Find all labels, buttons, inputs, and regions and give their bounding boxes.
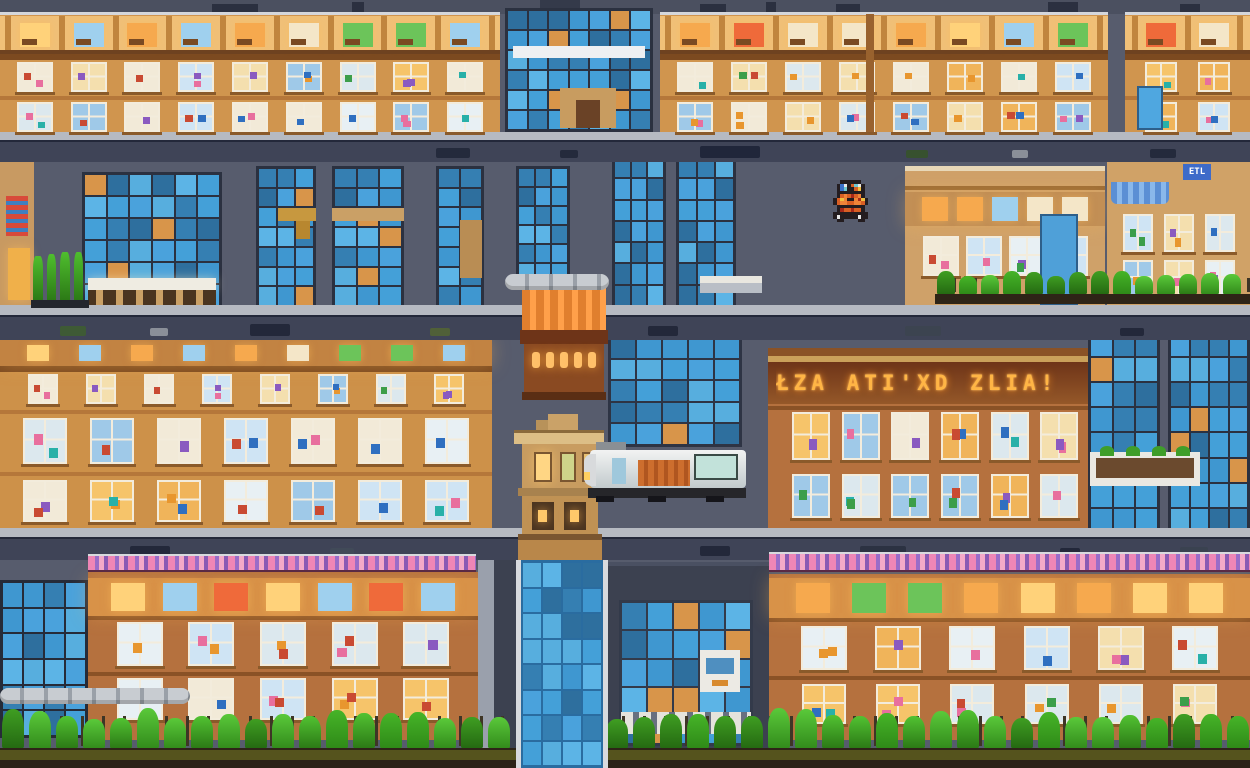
balcony-planters [1152, 446, 1166, 456]
window [1024, 626, 1070, 670]
glass-pane [259, 287, 276, 305]
glass-pane [648, 286, 663, 305]
glass-pane [358, 268, 379, 286]
glass-pane [1091, 408, 1112, 431]
glass-pane [278, 169, 295, 187]
window-sill [837, 132, 877, 135]
hedge-bush [849, 716, 871, 748]
glass-pane [543, 614, 561, 638]
balcony-pier [989, 16, 995, 54]
glass-pane [85, 241, 106, 261]
window-interior [180, 104, 212, 130]
glass-pane [278, 287, 295, 305]
street-object [60, 326, 86, 336]
window-interior [159, 482, 199, 520]
glass-pane [543, 716, 561, 740]
glass-pane [563, 716, 581, 740]
street-object [436, 148, 470, 158]
balcony-pier [5, 16, 11, 54]
attic-window [1021, 583, 1055, 613]
service-beam [332, 208, 404, 221]
window [90, 418, 134, 464]
glass-pane [461, 189, 481, 207]
roof-edge [660, 12, 1108, 15]
glass-pane [726, 603, 750, 629]
window [1055, 62, 1091, 92]
glass-pane [715, 403, 739, 423]
window [1123, 214, 1153, 252]
window-interior [1003, 104, 1035, 130]
glass-pane [632, 201, 647, 220]
cornice [0, 54, 500, 60]
attic-window [235, 23, 265, 47]
glass-pane [543, 665, 561, 689]
window-sill [675, 132, 715, 135]
glass-pane [66, 609, 85, 633]
hedge-bush [1173, 714, 1195, 748]
window-sill [176, 132, 216, 135]
window [677, 62, 713, 92]
roof-edge [1125, 12, 1250, 15]
window-accent [238, 116, 245, 123]
window-sill [1053, 92, 1093, 95]
window-accent [249, 438, 258, 448]
edge-post [603, 560, 608, 768]
glass-pane [461, 169, 481, 187]
window [875, 626, 921, 670]
window-sill [432, 404, 466, 407]
window-accent [1035, 704, 1044, 713]
roof-edge [0, 12, 500, 15]
glass-pane [358, 169, 379, 187]
window-interior [73, 64, 105, 90]
lobby-door [576, 100, 600, 128]
balcony-pier [1237, 16, 1243, 54]
glass-pane [45, 583, 64, 607]
glass-pane [1171, 383, 1189, 406]
attic-window [964, 583, 998, 613]
street-object [1012, 150, 1028, 158]
window-accent [349, 115, 356, 122]
window-accent [911, 119, 918, 126]
lamp [538, 510, 547, 522]
balcony-pier [773, 16, 779, 54]
attic-window [1146, 23, 1176, 47]
glass-pane [439, 248, 459, 266]
furniture [1148, 39, 1163, 45]
window-sill [284, 92, 324, 95]
window-sill [939, 518, 981, 521]
window-sill [947, 670, 997, 673]
glass-grid [1091, 333, 1157, 557]
window-interior [342, 64, 374, 90]
window-accent [143, 117, 150, 124]
glass-pane [85, 175, 106, 195]
glass-pane [3, 660, 22, 684]
window [842, 412, 880, 460]
glass-pane [1091, 484, 1112, 507]
blue-glass-door [1137, 86, 1163, 130]
window-accent [462, 115, 469, 122]
glass-pane [130, 241, 151, 261]
window-interior [895, 64, 927, 90]
window-interior [262, 376, 288, 402]
window-accent [1170, 229, 1176, 237]
glass-pane [108, 197, 129, 217]
window [224, 418, 268, 464]
glass-pane [700, 688, 724, 714]
glass-pane [648, 243, 663, 262]
glass-pane [679, 201, 696, 220]
window [144, 374, 174, 404]
window-accent [44, 392, 50, 399]
window-accent [279, 649, 288, 659]
window-interior [395, 104, 427, 130]
window-interior [1200, 104, 1228, 130]
attic-window [450, 23, 480, 47]
glass-pane [3, 634, 22, 658]
window-accent [178, 504, 187, 513]
glass-pane [1230, 484, 1248, 507]
sidewalk-edge [0, 528, 1250, 537]
window [291, 418, 335, 464]
window-interior [234, 104, 266, 130]
glass-pane [1191, 358, 1209, 381]
window-accent [422, 702, 431, 711]
balcony-planters [1096, 458, 1194, 478]
window-interior [334, 624, 376, 664]
hedge-bush [380, 713, 402, 748]
wheel [706, 496, 724, 502]
window-accent [298, 439, 307, 449]
window [966, 236, 1002, 276]
window-sill [840, 460, 882, 463]
glass-pane [1230, 459, 1248, 482]
glass-pane [523, 665, 541, 689]
glass-pane [698, 201, 715, 220]
window-accent [1180, 697, 1189, 706]
window-accent [34, 434, 43, 444]
window [17, 102, 53, 132]
glass-pane [278, 189, 295, 207]
window [376, 374, 406, 404]
window [891, 412, 929, 460]
lit-window [8, 248, 30, 300]
glass-pane [153, 219, 174, 239]
window-sill [176, 92, 216, 95]
window-interior [1125, 216, 1151, 250]
window-interior [180, 64, 212, 90]
robot-cart-sprite[interactable] [833, 180, 872, 226]
window [71, 102, 107, 132]
furniture [844, 39, 859, 45]
window [178, 102, 214, 132]
garland-rail [769, 552, 1250, 554]
window-sill [21, 522, 69, 525]
glass-pane [519, 226, 534, 243]
attic-window [111, 583, 145, 611]
glass-pane [1114, 358, 1135, 381]
glass-pane [259, 189, 276, 207]
window-accent [949, 498, 957, 508]
window-accent [941, 261, 948, 270]
glass-pane [259, 208, 276, 226]
glass-pane [631, 111, 650, 129]
glass-pane [549, 71, 568, 89]
window-accent [345, 636, 354, 646]
window [1198, 62, 1230, 92]
window-accent [847, 115, 854, 122]
rooftop-units [1180, 4, 1200, 12]
glass-pane [622, 631, 646, 657]
window-sill [338, 92, 378, 95]
window-interior [360, 420, 400, 462]
glass-pane [648, 631, 672, 657]
glass-pane [1191, 484, 1209, 507]
glass-pane [689, 424, 713, 444]
glass-pane [632, 264, 647, 283]
cornice [88, 616, 478, 620]
window-sill [790, 518, 832, 521]
glass-pane [130, 219, 151, 239]
hedge-bush [606, 719, 628, 748]
hedge-bush [83, 719, 105, 748]
hedge-bush [795, 709, 817, 748]
window-accent [1060, 116, 1067, 123]
rooftop-units [836, 4, 860, 12]
edge-post [516, 560, 521, 768]
window-interior [320, 376, 346, 402]
window [17, 62, 53, 92]
window-sill [391, 92, 431, 95]
window-interior [1011, 238, 1043, 274]
window-sill [258, 404, 292, 407]
window-sill [445, 92, 485, 95]
street-object [250, 324, 290, 336]
glass-pane [439, 169, 459, 187]
window-interior [190, 624, 232, 664]
window-sill [401, 666, 451, 669]
glass-pane [663, 381, 687, 401]
window [677, 102, 713, 132]
glass-pane [296, 268, 313, 286]
window-accent [1175, 238, 1181, 246]
hedge-bush [741, 716, 763, 748]
window [403, 678, 449, 720]
glass-pane [583, 665, 601, 689]
glass-pane [335, 248, 356, 266]
window-accent [248, 113, 255, 120]
cornice [0, 366, 492, 372]
window-accent [905, 73, 912, 80]
window-accent [238, 505, 247, 514]
glass-pane [679, 286, 696, 305]
window-interior [405, 680, 447, 718]
hedge-bush [1179, 274, 1197, 294]
hedge-bush [660, 714, 682, 748]
glass-pane [296, 287, 313, 305]
white-ledge [700, 283, 762, 293]
balcony-pier [166, 16, 172, 54]
window-sill [939, 460, 981, 463]
balcony-pier [113, 16, 119, 54]
balcony-pier [435, 16, 441, 54]
window-interior [794, 414, 828, 458]
window-accent [819, 649, 828, 659]
window-sill [783, 92, 823, 95]
window-sill [230, 92, 270, 95]
window-interior [1207, 216, 1233, 250]
window-accent [403, 80, 410, 87]
glass-pane [622, 660, 646, 686]
window [947, 102, 983, 132]
glass-pane [631, 11, 650, 29]
attic-window [788, 23, 818, 47]
attic-window [235, 345, 257, 361]
sidewalk-edge [0, 305, 1250, 315]
window-interior [360, 482, 400, 520]
window-interior [1166, 216, 1192, 250]
glass-pane [439, 287, 459, 305]
glass-pane [563, 691, 581, 715]
glass-pane [689, 360, 713, 380]
attic-window [957, 197, 983, 221]
window-sill [84, 404, 118, 407]
window-accent [1047, 698, 1056, 707]
window [1098, 626, 1144, 670]
garland-rail [88, 554, 476, 556]
glass-pane [622, 603, 646, 629]
pixel-city-scene: ETLŁZA ATI'XD ZLIA! [0, 0, 1250, 768]
hedge-bush [434, 718, 456, 748]
window-accent [971, 650, 980, 660]
window-interior [92, 482, 132, 520]
window-sill [142, 404, 176, 407]
glass-pane [552, 226, 567, 243]
window [1172, 626, 1218, 670]
glass-pane [176, 175, 197, 195]
attic-window [214, 583, 248, 611]
hedge-bush [218, 714, 240, 748]
attic-window [369, 583, 403, 611]
glass-pane [259, 248, 276, 266]
window [447, 62, 483, 92]
market-awning [522, 392, 606, 400]
shop-sign: ETL [1183, 164, 1211, 180]
window-accent [428, 640, 437, 650]
glass-pane [679, 222, 696, 241]
window-sill [222, 522, 270, 525]
window-interior [19, 64, 51, 90]
window-accent [968, 75, 975, 82]
glass-pane [590, 11, 609, 29]
hedge-bush [1146, 718, 1168, 748]
window [393, 62, 429, 92]
lit-lobby-band [88, 278, 216, 290]
glass-pane [716, 201, 733, 220]
glass-pane [296, 169, 313, 187]
service-shaft [460, 220, 482, 278]
glass-pane [543, 691, 561, 715]
window-sill [356, 464, 404, 467]
glass-pane [278, 248, 295, 266]
window-accent [691, 119, 698, 126]
glass-pane [66, 660, 85, 684]
glass-pane [689, 338, 713, 358]
glass-pane [380, 189, 401, 207]
glass-pane [552, 169, 567, 186]
window [1198, 102, 1230, 132]
window-interior [25, 420, 65, 462]
window-interior [226, 482, 266, 520]
window-accent [901, 113, 908, 120]
glass-pane [1091, 358, 1112, 381]
glass-pane [674, 603, 698, 629]
glass-pane [611, 381, 635, 401]
glass-pane [523, 563, 541, 587]
glass-pane [570, 11, 589, 29]
window-accent [443, 392, 449, 399]
glass-pane [108, 219, 129, 239]
window-interior [794, 476, 828, 516]
hedge-bush [29, 711, 51, 748]
glass-pane [543, 742, 561, 766]
window-sill [330, 666, 380, 669]
glass-pane [552, 188, 567, 205]
window-accent [1076, 73, 1083, 80]
rooftop-units [1048, 2, 1078, 12]
tower-window [534, 452, 552, 482]
glass-pane [700, 603, 724, 629]
window-accent [894, 697, 903, 706]
window-interior [342, 104, 374, 130]
window [124, 62, 160, 92]
light-band [513, 46, 645, 58]
window [340, 62, 376, 92]
lantern [588, 352, 596, 368]
window-accent [198, 115, 205, 122]
window-interior [378, 376, 404, 402]
street-object [430, 328, 450, 336]
glass-pane [715, 381, 739, 401]
window-accent [1001, 427, 1009, 438]
glass-pane [648, 688, 672, 714]
window [792, 412, 830, 460]
furniture [736, 39, 751, 45]
window-interior [733, 64, 765, 90]
glass-pane [611, 71, 630, 89]
window-interior [405, 624, 447, 664]
tower-window [560, 452, 576, 482]
glass-pane [611, 11, 630, 29]
glass-pane [335, 189, 356, 207]
window-interior [262, 624, 304, 664]
hedge-bush [326, 710, 348, 748]
glass-pane [278, 268, 295, 286]
attic-window [922, 197, 948, 221]
window-accent [1198, 654, 1207, 664]
window [447, 102, 483, 132]
clock-tower [536, 420, 548, 430]
sprite-pixel [865, 201, 869, 205]
window-sill [889, 518, 931, 521]
window-sill [999, 132, 1039, 135]
window-accent [167, 494, 176, 503]
window-accent [1120, 655, 1129, 665]
glass-pane [519, 207, 534, 224]
glass-pane [611, 338, 635, 358]
window-sill [122, 92, 162, 95]
